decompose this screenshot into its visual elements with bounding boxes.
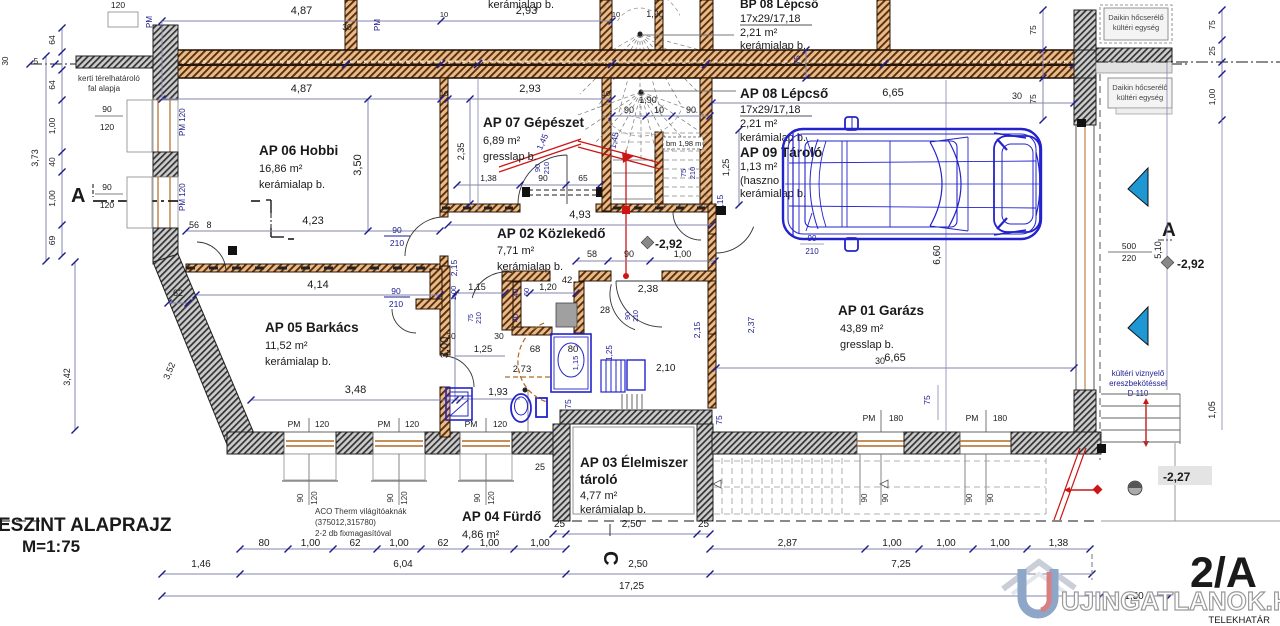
svg-text:42: 42 bbox=[562, 275, 573, 286]
svg-text:1,15: 1,15 bbox=[571, 356, 580, 371]
svg-text:1,00: 1,00 bbox=[990, 538, 1010, 549]
svg-text:90: 90 bbox=[473, 493, 482, 502]
svg-text:75: 75 bbox=[922, 395, 932, 405]
svg-text:25: 25 bbox=[698, 519, 710, 530]
svg-text:3,50: 3,50 bbox=[352, 154, 364, 175]
svg-text:PM: PM bbox=[373, 19, 382, 31]
svg-text:30: 30 bbox=[342, 22, 352, 32]
svg-text:90: 90 bbox=[625, 312, 632, 320]
svg-text:-2,27: -2,27 bbox=[1163, 470, 1191, 484]
svg-text:1,00: 1,00 bbox=[301, 538, 321, 549]
svg-text:PM: PM bbox=[178, 124, 187, 136]
svg-text:7,25: 7,25 bbox=[891, 559, 911, 570]
svg-text:75: 75 bbox=[1028, 25, 1038, 35]
svg-text:1,00: 1,00 bbox=[530, 538, 550, 549]
svg-text:2,87: 2,87 bbox=[778, 538, 798, 549]
svg-text:PM: PM bbox=[966, 413, 979, 423]
svg-text:75: 75 bbox=[468, 314, 475, 322]
svg-text:2,35: 2,35 bbox=[456, 143, 466, 161]
svg-text:120: 120 bbox=[315, 419, 329, 429]
svg-text:120: 120 bbox=[310, 491, 319, 505]
svg-text:90: 90 bbox=[860, 493, 869, 502]
svg-text:90: 90 bbox=[624, 249, 634, 259]
svg-text:6,65: 6,65 bbox=[882, 87, 903, 99]
svg-text:90: 90 bbox=[533, 164, 542, 172]
svg-text:8: 8 bbox=[206, 220, 211, 230]
svg-text:1,00: 1,00 bbox=[47, 190, 57, 207]
svg-text:75: 75 bbox=[1207, 20, 1217, 30]
svg-text:TELEKHATÁR: TELEKHATÁR bbox=[1208, 615, 1270, 626]
svg-text:2,15: 2,15 bbox=[692, 321, 702, 338]
svg-text:Daikin hőcserélő: Daikin hőcserélő bbox=[1108, 13, 1163, 22]
svg-text:AP 09 Tároló: AP 09 Tároló bbox=[740, 145, 822, 160]
svg-text:(375012,315780): (375012,315780) bbox=[315, 518, 376, 527]
svg-text:gresslap b.: gresslap b. bbox=[840, 339, 894, 351]
svg-text:10: 10 bbox=[440, 10, 448, 19]
svg-text:1,05: 1,05 bbox=[1207, 401, 1217, 419]
svg-text:210: 210 bbox=[805, 247, 819, 256]
svg-text:kerámialap b.: kerámialap b. bbox=[265, 356, 331, 368]
svg-text:kültéri egység: kültéri egység bbox=[1117, 93, 1163, 102]
svg-text:AP 03 Élelmiszer: AP 03 Élelmiszer bbox=[580, 455, 689, 470]
svg-text:120: 120 bbox=[111, 0, 125, 10]
svg-text:PM: PM bbox=[145, 16, 154, 28]
svg-text:17,25: 17,25 bbox=[619, 581, 644, 592]
svg-text:10: 10 bbox=[612, 10, 620, 19]
svg-text:90: 90 bbox=[686, 105, 696, 115]
svg-text:1,93: 1,93 bbox=[488, 387, 508, 398]
svg-text:210: 210 bbox=[633, 310, 640, 322]
svg-text:210: 210 bbox=[389, 299, 403, 309]
svg-text:210: 210 bbox=[688, 167, 697, 180]
svg-text:62: 62 bbox=[349, 538, 361, 549]
svg-text:56: 56 bbox=[189, 220, 199, 230]
svg-text:90: 90 bbox=[296, 493, 305, 502]
svg-text:120: 120 bbox=[405, 419, 419, 429]
svg-text:90: 90 bbox=[386, 493, 395, 502]
svg-text:kerámialap b.: kerámialap b. bbox=[497, 261, 563, 273]
svg-text:2,73: 2,73 bbox=[513, 364, 532, 375]
svg-text:1,25: 1,25 bbox=[474, 344, 493, 355]
svg-text:AP 04 Fürdő: AP 04 Fürdő bbox=[462, 509, 541, 524]
svg-text:60: 60 bbox=[522, 288, 531, 296]
svg-text:30: 30 bbox=[1012, 91, 1022, 101]
svg-text:120: 120 bbox=[400, 491, 409, 505]
svg-text:2,21 m²: 2,21 m² bbox=[740, 27, 778, 39]
svg-text:D 110: D 110 bbox=[1128, 389, 1149, 398]
svg-text:4,93: 4,93 bbox=[569, 209, 590, 221]
svg-text:kültéri egység: kültéri egység bbox=[1113, 23, 1159, 32]
svg-text:AP 07 Gépészet: AP 07 Gépészet bbox=[483, 115, 585, 130]
svg-text:25: 25 bbox=[554, 519, 566, 530]
svg-text:17x29/17,18: 17x29/17,18 bbox=[740, 104, 801, 116]
svg-text:10: 10 bbox=[602, 89, 610, 98]
svg-text:17x29/17,18: 17x29/17,18 bbox=[740, 13, 801, 25]
svg-text:2,37: 2,37 bbox=[746, 316, 756, 333]
svg-text:PM: PM bbox=[863, 413, 876, 423]
svg-text:PM: PM bbox=[378, 419, 391, 429]
svg-text:1,25: 1,25 bbox=[721, 159, 731, 177]
svg-text:2,93: 2,93 bbox=[516, 5, 537, 17]
svg-text:2,10: 2,10 bbox=[656, 363, 676, 374]
svg-text:kerti térelhatároló: kerti térelhatároló bbox=[78, 74, 140, 83]
svg-text:3,42: 3,42 bbox=[62, 368, 72, 386]
svg-text:6,65: 6,65 bbox=[884, 352, 905, 364]
svg-text:180: 180 bbox=[993, 413, 1007, 423]
svg-text:kültéri viznyelő: kültéri viznyelő bbox=[1112, 369, 1165, 378]
svg-text:75: 75 bbox=[1028, 94, 1038, 104]
svg-text:210: 210 bbox=[542, 162, 551, 175]
svg-text:5,10: 5,10 bbox=[1153, 241, 1163, 259]
svg-text:AP 08 Lépcső: AP 08 Lépcső bbox=[740, 86, 828, 101]
svg-text:30: 30 bbox=[446, 331, 456, 341]
svg-text:2,15: 2,15 bbox=[449, 259, 459, 276]
svg-text:1,46: 1,46 bbox=[191, 559, 211, 570]
svg-text:120: 120 bbox=[178, 183, 187, 197]
svg-text:bm 1,98 m: bm 1,98 m bbox=[666, 139, 701, 148]
svg-text:4,77 m²: 4,77 m² bbox=[580, 490, 618, 502]
svg-text:90: 90 bbox=[986, 493, 995, 502]
svg-text:68: 68 bbox=[530, 344, 541, 355]
svg-text:10: 10 bbox=[440, 89, 448, 98]
svg-text:-2,92: -2,92 bbox=[1177, 257, 1205, 271]
svg-text:(haszno: (haszno bbox=[740, 175, 779, 187]
svg-text:40: 40 bbox=[511, 314, 520, 322]
svg-text:90: 90 bbox=[624, 105, 634, 115]
svg-text:3,73: 3,73 bbox=[30, 149, 40, 167]
svg-text:1,25: 1,25 bbox=[605, 345, 614, 361]
svg-text:1,00: 1,00 bbox=[389, 538, 409, 549]
svg-text:10: 10 bbox=[654, 105, 664, 115]
svg-text:80: 80 bbox=[258, 538, 270, 549]
svg-text:62: 62 bbox=[437, 538, 449, 549]
svg-text:1,00: 1,00 bbox=[449, 286, 458, 301]
svg-text:40: 40 bbox=[47, 157, 57, 167]
svg-text:2,93: 2,93 bbox=[519, 83, 540, 95]
svg-text:90: 90 bbox=[391, 286, 401, 296]
svg-text:5: 5 bbox=[34, 57, 39, 66]
svg-text:43,89 m²: 43,89 m² bbox=[840, 323, 884, 335]
svg-text:25: 25 bbox=[535, 462, 545, 472]
svg-text:210: 210 bbox=[390, 238, 404, 248]
svg-text:6,04: 6,04 bbox=[393, 559, 413, 570]
svg-text:1,00: 1,00 bbox=[882, 538, 902, 549]
svg-text:58: 58 bbox=[587, 249, 597, 259]
svg-text:90: 90 bbox=[881, 493, 890, 502]
svg-text:69: 69 bbox=[47, 236, 57, 246]
svg-text:6,89 m²: 6,89 m² bbox=[483, 135, 521, 147]
svg-text:1,00: 1,00 bbox=[1207, 88, 1217, 105]
svg-text:120: 120 bbox=[178, 108, 187, 122]
svg-text:1,13 m²: 1,13 m² bbox=[740, 161, 778, 173]
svg-text:AP 05 Barkács: AP 05 Barkács bbox=[265, 320, 359, 335]
svg-text:64: 64 bbox=[47, 80, 57, 90]
svg-text:90: 90 bbox=[392, 225, 402, 235]
svg-text:Daikin hőcserélő: Daikin hőcserélő bbox=[1112, 83, 1167, 92]
svg-text:30: 30 bbox=[1, 56, 10, 65]
svg-text:ereszbekötéssel: ereszbekötéssel bbox=[1109, 379, 1167, 388]
svg-text:75: 75 bbox=[563, 399, 573, 409]
svg-text:1,90: 1,90 bbox=[646, 9, 664, 19]
svg-text:7,71 m²: 7,71 m² bbox=[497, 245, 535, 257]
svg-text:1,20: 1,20 bbox=[539, 282, 557, 292]
svg-text:1,38: 1,38 bbox=[480, 173, 497, 183]
svg-text:ESZINT ALAPRAJZ: ESZINT ALAPRAJZ bbox=[0, 515, 172, 536]
svg-text:120: 120 bbox=[100, 200, 114, 210]
svg-text:fal alapja: fal alapja bbox=[88, 84, 121, 93]
svg-text:90: 90 bbox=[102, 182, 112, 192]
svg-text:tároló: tároló bbox=[580, 472, 618, 487]
svg-text:2,38: 2,38 bbox=[638, 283, 659, 295]
svg-text:25: 25 bbox=[1207, 46, 1217, 56]
svg-text:500: 500 bbox=[1122, 241, 1136, 251]
svg-text:120: 120 bbox=[493, 419, 507, 429]
svg-text:6,60: 6,60 bbox=[932, 245, 943, 265]
svg-text:4,87: 4,87 bbox=[291, 5, 312, 17]
svg-text:4,23: 4,23 bbox=[302, 215, 323, 227]
svg-text:75: 75 bbox=[792, 55, 802, 65]
svg-text:40: 40 bbox=[511, 289, 520, 297]
svg-text:A: A bbox=[1162, 220, 1176, 241]
svg-text:1,00: 1,00 bbox=[936, 538, 956, 549]
svg-text:UJINGATLANOK.HU: UJINGATLANOK.HU bbox=[1061, 586, 1280, 616]
svg-text:80: 80 bbox=[568, 344, 579, 355]
svg-text:3,48: 3,48 bbox=[345, 384, 366, 396]
svg-text:PM: PM bbox=[178, 199, 187, 211]
svg-text:120: 120 bbox=[487, 491, 496, 505]
svg-text:kerámialap b.: kerámialap b. bbox=[740, 188, 806, 200]
svg-text:1,90: 1,90 bbox=[639, 95, 657, 105]
svg-text:62: 62 bbox=[173, 288, 183, 298]
svg-text:A: A bbox=[71, 185, 85, 207]
svg-text:30: 30 bbox=[494, 331, 504, 341]
svg-text:PM: PM bbox=[288, 419, 301, 429]
svg-text:gresslap b.: gresslap b. bbox=[483, 151, 537, 163]
svg-text:90: 90 bbox=[102, 104, 112, 114]
svg-text:ACO Therm világítóaknák: ACO Therm világítóaknák bbox=[315, 507, 407, 516]
svg-text:120: 120 bbox=[100, 122, 114, 132]
svg-text:AP 02 Közlekedő: AP 02 Közlekedő bbox=[497, 226, 606, 241]
svg-text:30: 30 bbox=[875, 356, 885, 366]
svg-text:BP 08 Lépcső: BP 08 Lépcső bbox=[740, 0, 818, 11]
svg-text:AP 01 Garázs: AP 01 Garázs bbox=[838, 303, 924, 318]
svg-text:kerámialap b.: kerámialap b. bbox=[740, 132, 806, 144]
svg-text:M=1:75: M=1:75 bbox=[22, 537, 80, 556]
svg-text:2,21 m²: 2,21 m² bbox=[740, 118, 778, 130]
svg-text:64: 64 bbox=[47, 35, 57, 45]
svg-text:C: C bbox=[599, 551, 621, 565]
svg-text:2,50: 2,50 bbox=[622, 519, 642, 530]
svg-text:kerámialap b.: kerámialap b. bbox=[580, 504, 646, 516]
svg-text:-2,92: -2,92 bbox=[655, 237, 683, 251]
svg-text:180: 180 bbox=[889, 413, 903, 423]
svg-text:220: 220 bbox=[1122, 253, 1136, 263]
svg-text:2-2 db fixmagasítóval: 2-2 db fixmagasítóval bbox=[315, 529, 391, 538]
svg-text:2,50: 2,50 bbox=[628, 559, 648, 570]
svg-text:210: 210 bbox=[476, 312, 483, 324]
svg-text:16,86 m²: 16,86 m² bbox=[259, 163, 303, 175]
svg-text:28: 28 bbox=[600, 305, 610, 315]
svg-text:65: 65 bbox=[578, 173, 588, 183]
svg-text:90: 90 bbox=[965, 493, 974, 502]
svg-text:1,00: 1,00 bbox=[47, 117, 57, 134]
svg-text:4,14: 4,14 bbox=[307, 279, 328, 291]
svg-text:11,52 m²: 11,52 m² bbox=[265, 340, 308, 352]
svg-text:1,38: 1,38 bbox=[1049, 538, 1069, 549]
svg-text:1,00: 1,00 bbox=[480, 538, 500, 549]
svg-text:75: 75 bbox=[679, 169, 688, 177]
svg-text:AP 06 Hobbi: AP 06 Hobbi bbox=[259, 143, 338, 158]
svg-text:kerámialap b.: kerámialap b. bbox=[259, 179, 325, 191]
svg-text:4,87: 4,87 bbox=[291, 83, 312, 95]
svg-text:75: 75 bbox=[714, 415, 724, 425]
